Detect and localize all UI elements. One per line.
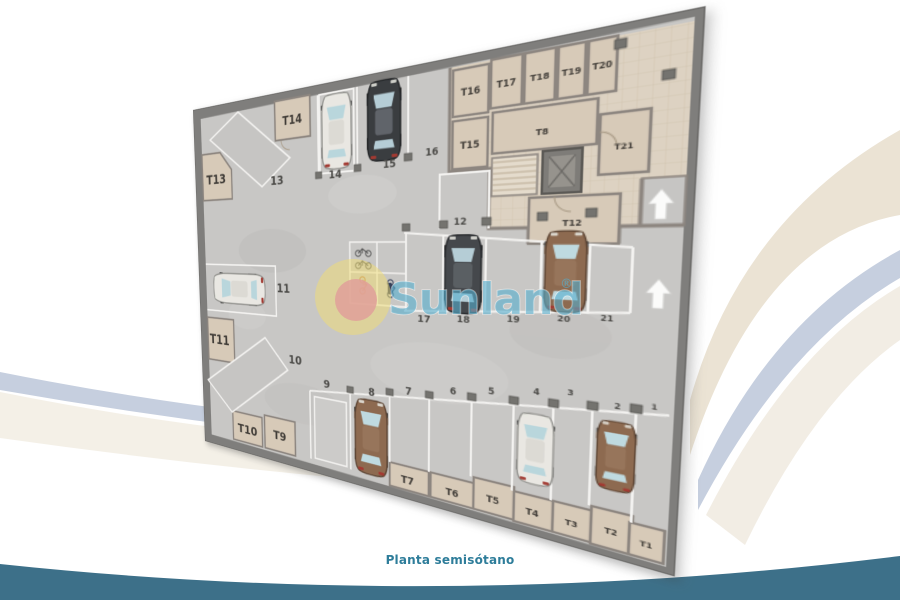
storage-label-t8: T8 (536, 127, 550, 139)
parking-label-14: 14 (329, 167, 343, 181)
parking-label-15: 15 (383, 158, 397, 172)
parking-label-11: 11 (277, 283, 291, 297)
parking-label-1: 1 (651, 402, 658, 412)
parking-label-20: 20 (557, 314, 572, 325)
parking-label-13: 13 (270, 175, 283, 189)
parking-label-19: 19 (507, 315, 521, 326)
parking-label-21: 21 (600, 313, 614, 325)
car-icon (443, 235, 484, 316)
parking-label-9: 9 (323, 377, 330, 391)
storage-label-t11: T11 (210, 331, 230, 349)
parking-label-7: 7 (405, 386, 412, 399)
car-icon (353, 397, 389, 480)
storage-label-t13: T13 (206, 172, 226, 188)
storage-label-t15: T15 (460, 140, 480, 152)
parking-label-10: 10 (288, 354, 301, 369)
parking-label-12: 12 (454, 218, 467, 228)
stairs-icon (491, 154, 537, 196)
parking-label-4: 4 (533, 388, 541, 399)
elevator-icon (542, 148, 583, 194)
car-icon (213, 271, 265, 308)
car-icon (366, 76, 403, 162)
storage-label-t12: T12 (562, 218, 582, 229)
storage-label-t21: T21 (614, 140, 634, 152)
car-icon (593, 419, 638, 496)
parking-label-2: 2 (614, 401, 621, 413)
parking-label-3: 3 (567, 388, 574, 399)
plan-caption: Planta semisótano (0, 553, 900, 567)
parking-label-6: 6 (450, 386, 457, 398)
parking-label-8: 8 (368, 386, 375, 400)
car-icon (542, 230, 591, 313)
parking-label-16: 16 (425, 146, 438, 159)
car-icon (320, 90, 353, 170)
car-icon (515, 411, 557, 489)
storage-label-t14: T14 (282, 112, 302, 129)
parking-spot-9 (314, 397, 347, 467)
parking-label-17: 17 (417, 313, 430, 326)
parking-label-5: 5 (488, 387, 495, 397)
parking-label-18: 18 (457, 316, 470, 326)
page: T13 T14 T16 T15 T17 T18 T19 T20 T8 T21 T… (0, 0, 900, 600)
